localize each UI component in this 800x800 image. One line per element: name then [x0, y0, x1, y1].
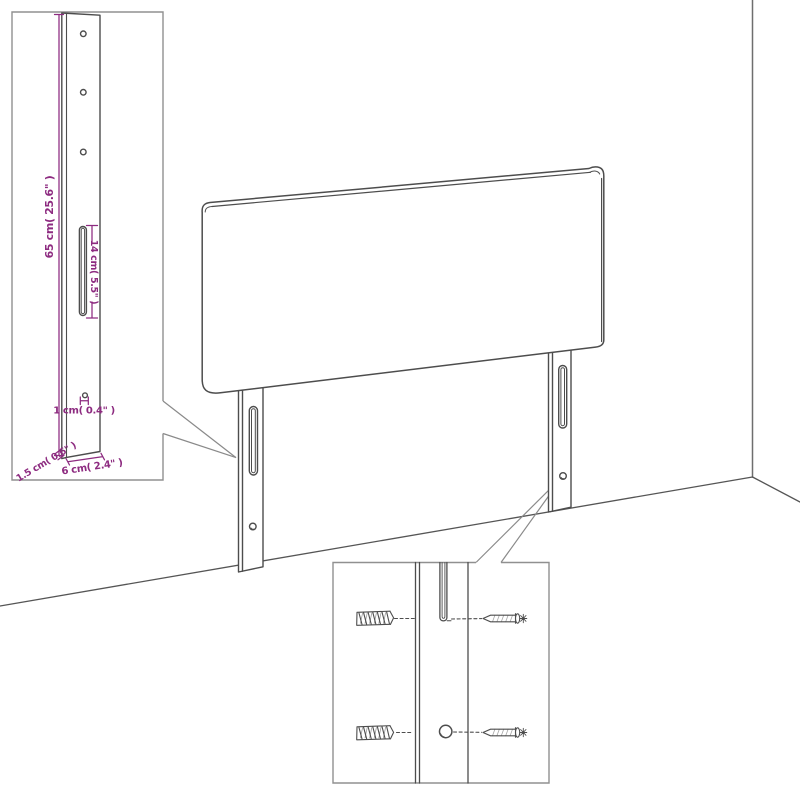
diagram-canvas: 65 cm( 25.6" ) 14 cm( 5.5" ) 1 cm( 0.4" …	[0, 0, 800, 800]
headboard-diagram: 65 cm( 25.6" ) 14 cm( 5.5" ) 1 cm( 0.4" …	[0, 0, 800, 800]
dim-label-height: 65 cm( 25.6" )	[43, 175, 56, 258]
headboard-leg-left	[239, 384, 264, 572]
dim-label-hole: 1 cm( 0.4" )	[53, 406, 115, 417]
dim-label-slot: 14 cm( 5.5" )	[88, 240, 99, 305]
post-drawing	[62, 13, 100, 459]
inset-background	[333, 563, 549, 784]
headboard-leg-right	[549, 346, 572, 512]
inset-mount-detail	[333, 563, 549, 784]
